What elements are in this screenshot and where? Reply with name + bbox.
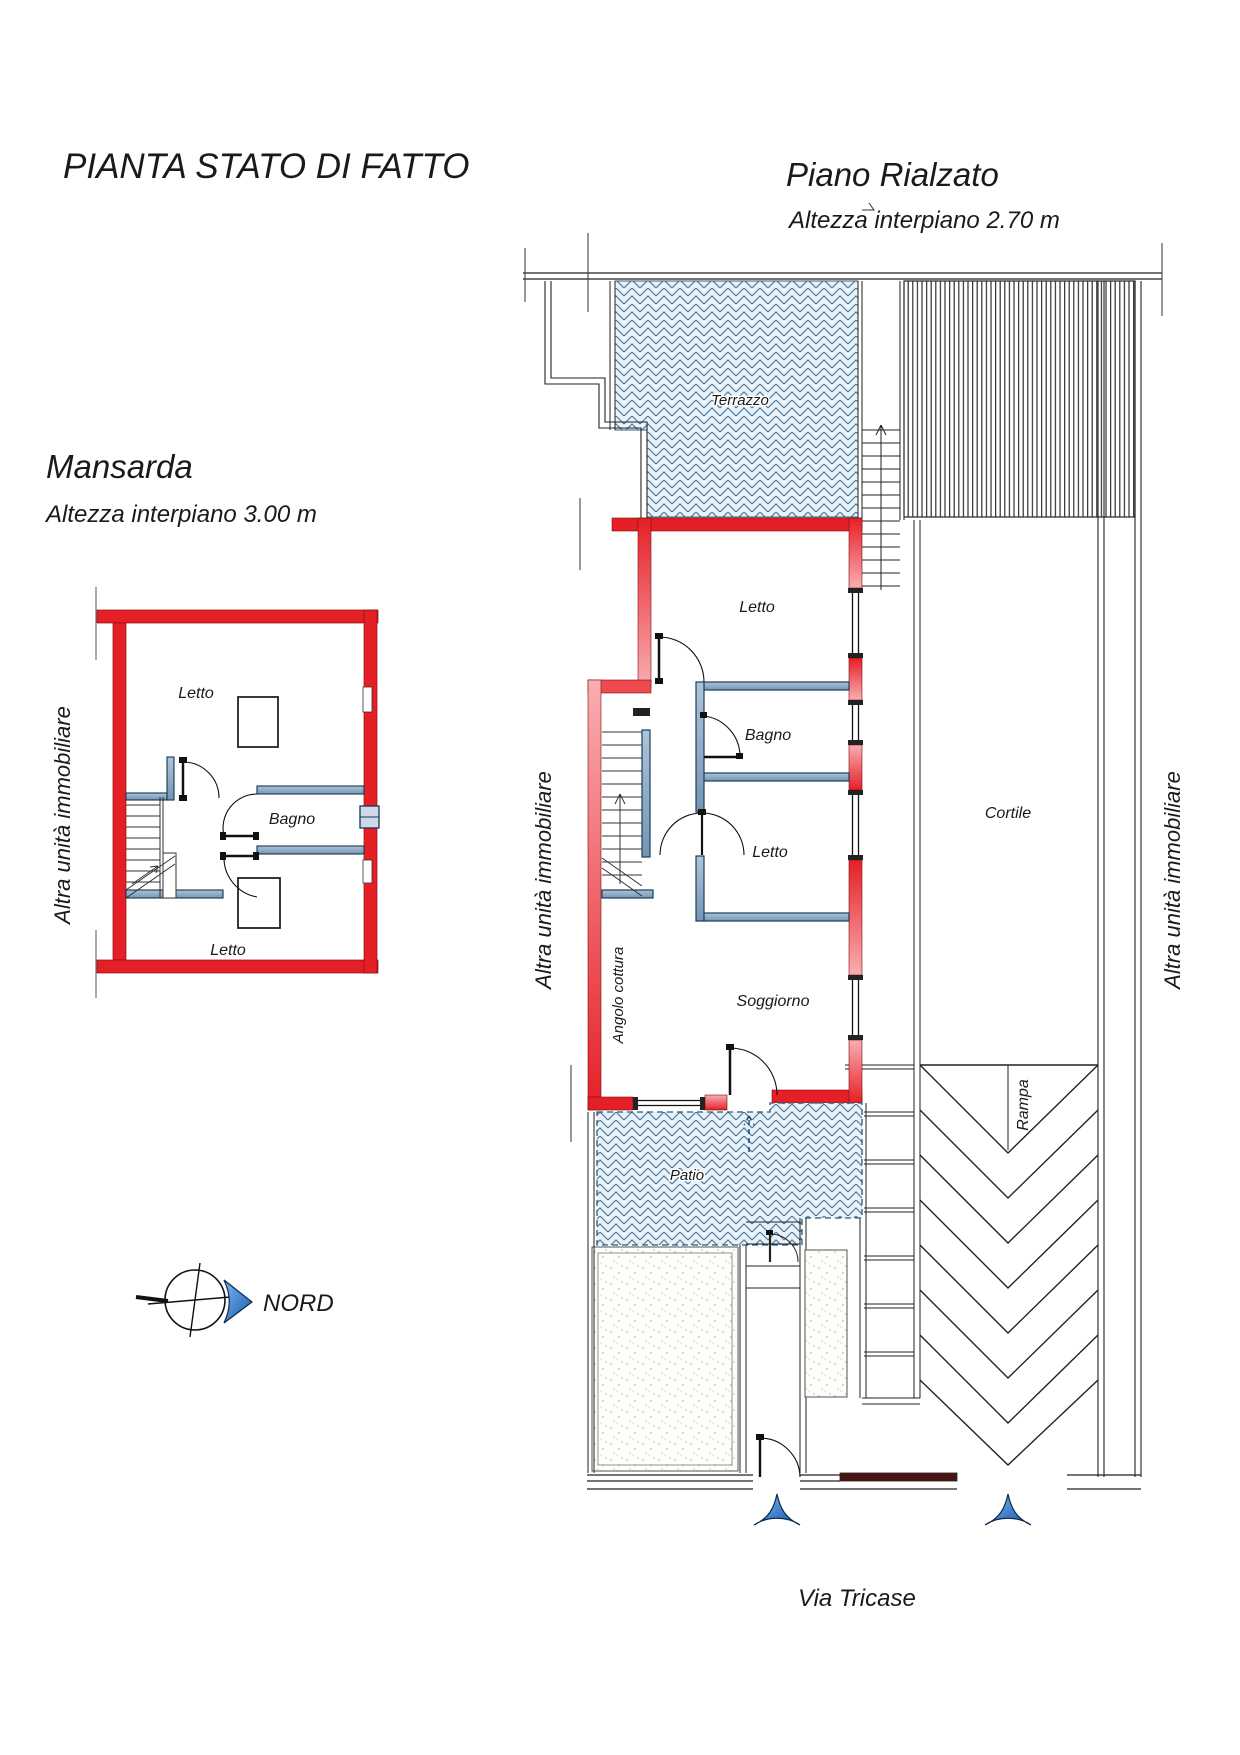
driveway-gate — [840, 1473, 957, 1481]
rialzato-plan: Terrazzo Patio Letto Bagno Letto Soggior… — [523, 203, 1162, 1525]
page-title: PIANTA STATO DI FATTO — [63, 147, 469, 186]
rampa-label: Rampa — [1015, 1079, 1032, 1131]
pedestrian-gate — [756, 1434, 800, 1477]
interior-doors — [655, 633, 777, 1095]
cortile-label: Cortile — [985, 805, 1031, 822]
bagno-label: Bagno — [745, 727, 791, 744]
floor-plan-drawing: PIANTA STATO DI FATTO Piano Rialzato Alt… — [0, 0, 1240, 1755]
mansarda-title: Mansarda — [46, 448, 193, 485]
floor-plan-page: PIANTA STATO DI FATTO Piano Rialzato Alt… — [0, 0, 1240, 1755]
mansarda-plan: Letto Bagno Letto — [96, 587, 379, 998]
neighbor-roof-hatch — [904, 281, 1135, 517]
angolo-cottura-label: Angolo cottura — [610, 947, 627, 1045]
mansarda-bagno-label: Bagno — [269, 811, 315, 828]
entrance-arrow-icon — [754, 1494, 800, 1525]
adjacent-unit-label-left: Altra unità immobiliare — [50, 706, 75, 926]
letto-top-label: Letto — [739, 599, 775, 616]
mansarda-letto-top-label: Letto — [178, 685, 214, 702]
mansarda-stairs — [126, 797, 176, 898]
street-label: Via Tricase — [798, 1585, 916, 1612]
rialzato-title: Piano Rialzato — [786, 156, 999, 193]
garden-left — [592, 1247, 738, 1471]
mansarda-skylight-top — [238, 697, 278, 747]
patio-label: Patio — [670, 1167, 704, 1184]
north-compass-icon — [136, 1263, 252, 1337]
external-stairs — [858, 281, 904, 590]
entrance-arrow-icon — [985, 1494, 1031, 1525]
garden-right — [805, 1250, 847, 1397]
terrazzo-label: Terrazzo — [711, 392, 769, 409]
mansarda-subtitle: Altezza interpiano 3.00 m — [44, 501, 317, 528]
rampa-chevrons — [920, 1065, 1098, 1465]
mansarda-skylight-bottom — [238, 878, 280, 928]
mansarda-letto-bottom-label: Letto — [210, 942, 246, 959]
adjacent-unit-label-right: Altra unità immobiliare — [1160, 771, 1185, 991]
patio-hatch — [597, 1103, 862, 1245]
rialzato-subtitle: Altezza interpiano 2.70 m — [787, 207, 1060, 234]
soggiorno-window — [633, 1097, 705, 1110]
north-label: NORD — [263, 1290, 334, 1317]
mansarda-doors — [179, 757, 259, 897]
soggiorno-label: Soggiorno — [737, 993, 810, 1010]
adjacent-unit-label-middle: Altra unità immobiliare — [531, 771, 556, 991]
letto-mid-label: Letto — [752, 844, 788, 861]
